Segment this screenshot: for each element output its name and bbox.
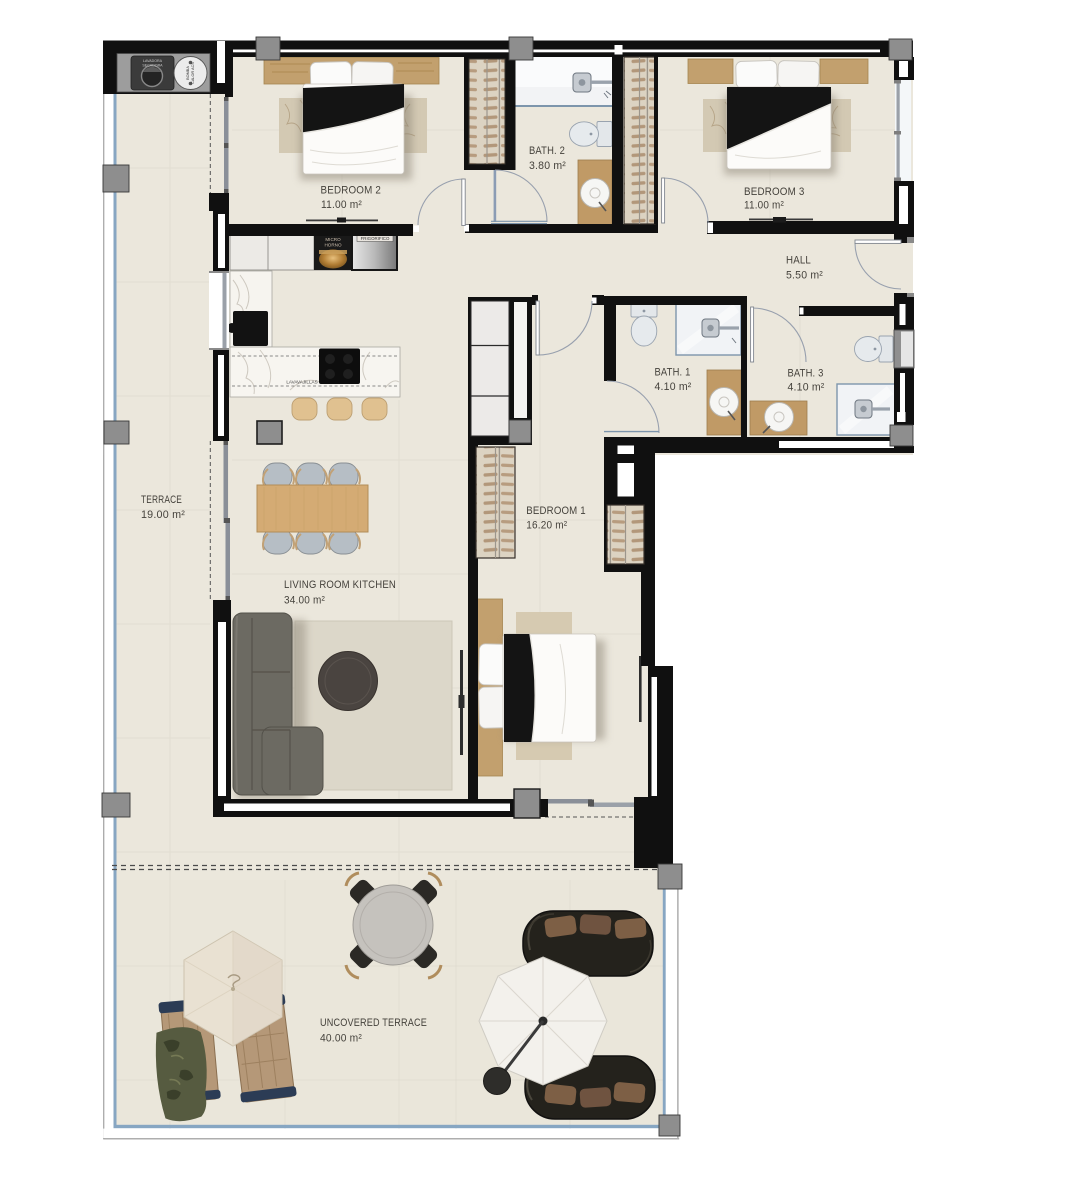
svg-text:11.00 m²: 11.00 m²	[744, 200, 784, 212]
svg-text:LIVING ROOM KITCHEN: LIVING ROOM KITCHEN	[284, 579, 396, 591]
svg-text:BATH. 1: BATH. 1	[655, 367, 691, 379]
svg-text:34.00 m²: 34.00 m²	[284, 595, 325, 607]
svg-text:HALL: HALL	[786, 255, 811, 267]
svg-text:BATH. 2: BATH. 2	[529, 145, 565, 157]
svg-text:40.00 m²: 40.00 m²	[320, 1033, 362, 1045]
svg-text:SECADORA: SECADORA	[142, 63, 163, 67]
svg-text:5.50 m²: 5.50 m²	[786, 270, 823, 282]
svg-text:3.80 m²: 3.80 m²	[529, 160, 566, 172]
svg-text:BEDROOM 1: BEDROOM 1	[526, 505, 586, 517]
svg-text:HORNO: HORNO	[324, 243, 342, 248]
svg-text:BOMBA: BOMBA	[186, 66, 190, 80]
svg-text:LAVAVAJILLAS: LAVAVAJILLAS	[286, 380, 317, 385]
svg-text:19.00 m²: 19.00 m²	[141, 509, 185, 521]
svg-text:11.00 m²: 11.00 m²	[321, 199, 362, 211]
svg-text:BATH. 3: BATH. 3	[788, 368, 824, 380]
svg-text:16.20 m²: 16.20 m²	[526, 520, 567, 532]
svg-text:UNCOVERED TERRACE: UNCOVERED TERRACE	[320, 1017, 427, 1029]
svg-text:4.10 m²: 4.10 m²	[655, 381, 692, 393]
svg-text:MICRO: MICRO	[325, 237, 341, 242]
svg-text:TERRACE: TERRACE	[141, 494, 182, 506]
svg-text:BEDROOM 3: BEDROOM 3	[744, 186, 805, 198]
svg-text:BEDROOM 2: BEDROOM 2	[321, 184, 382, 196]
svg-text:CALOR ACS: CALOR ACS	[191, 62, 195, 84]
svg-text:FRIGORIFICO: FRIGORIFICO	[361, 236, 390, 241]
svg-text:4.10 m²: 4.10 m²	[788, 382, 825, 394]
